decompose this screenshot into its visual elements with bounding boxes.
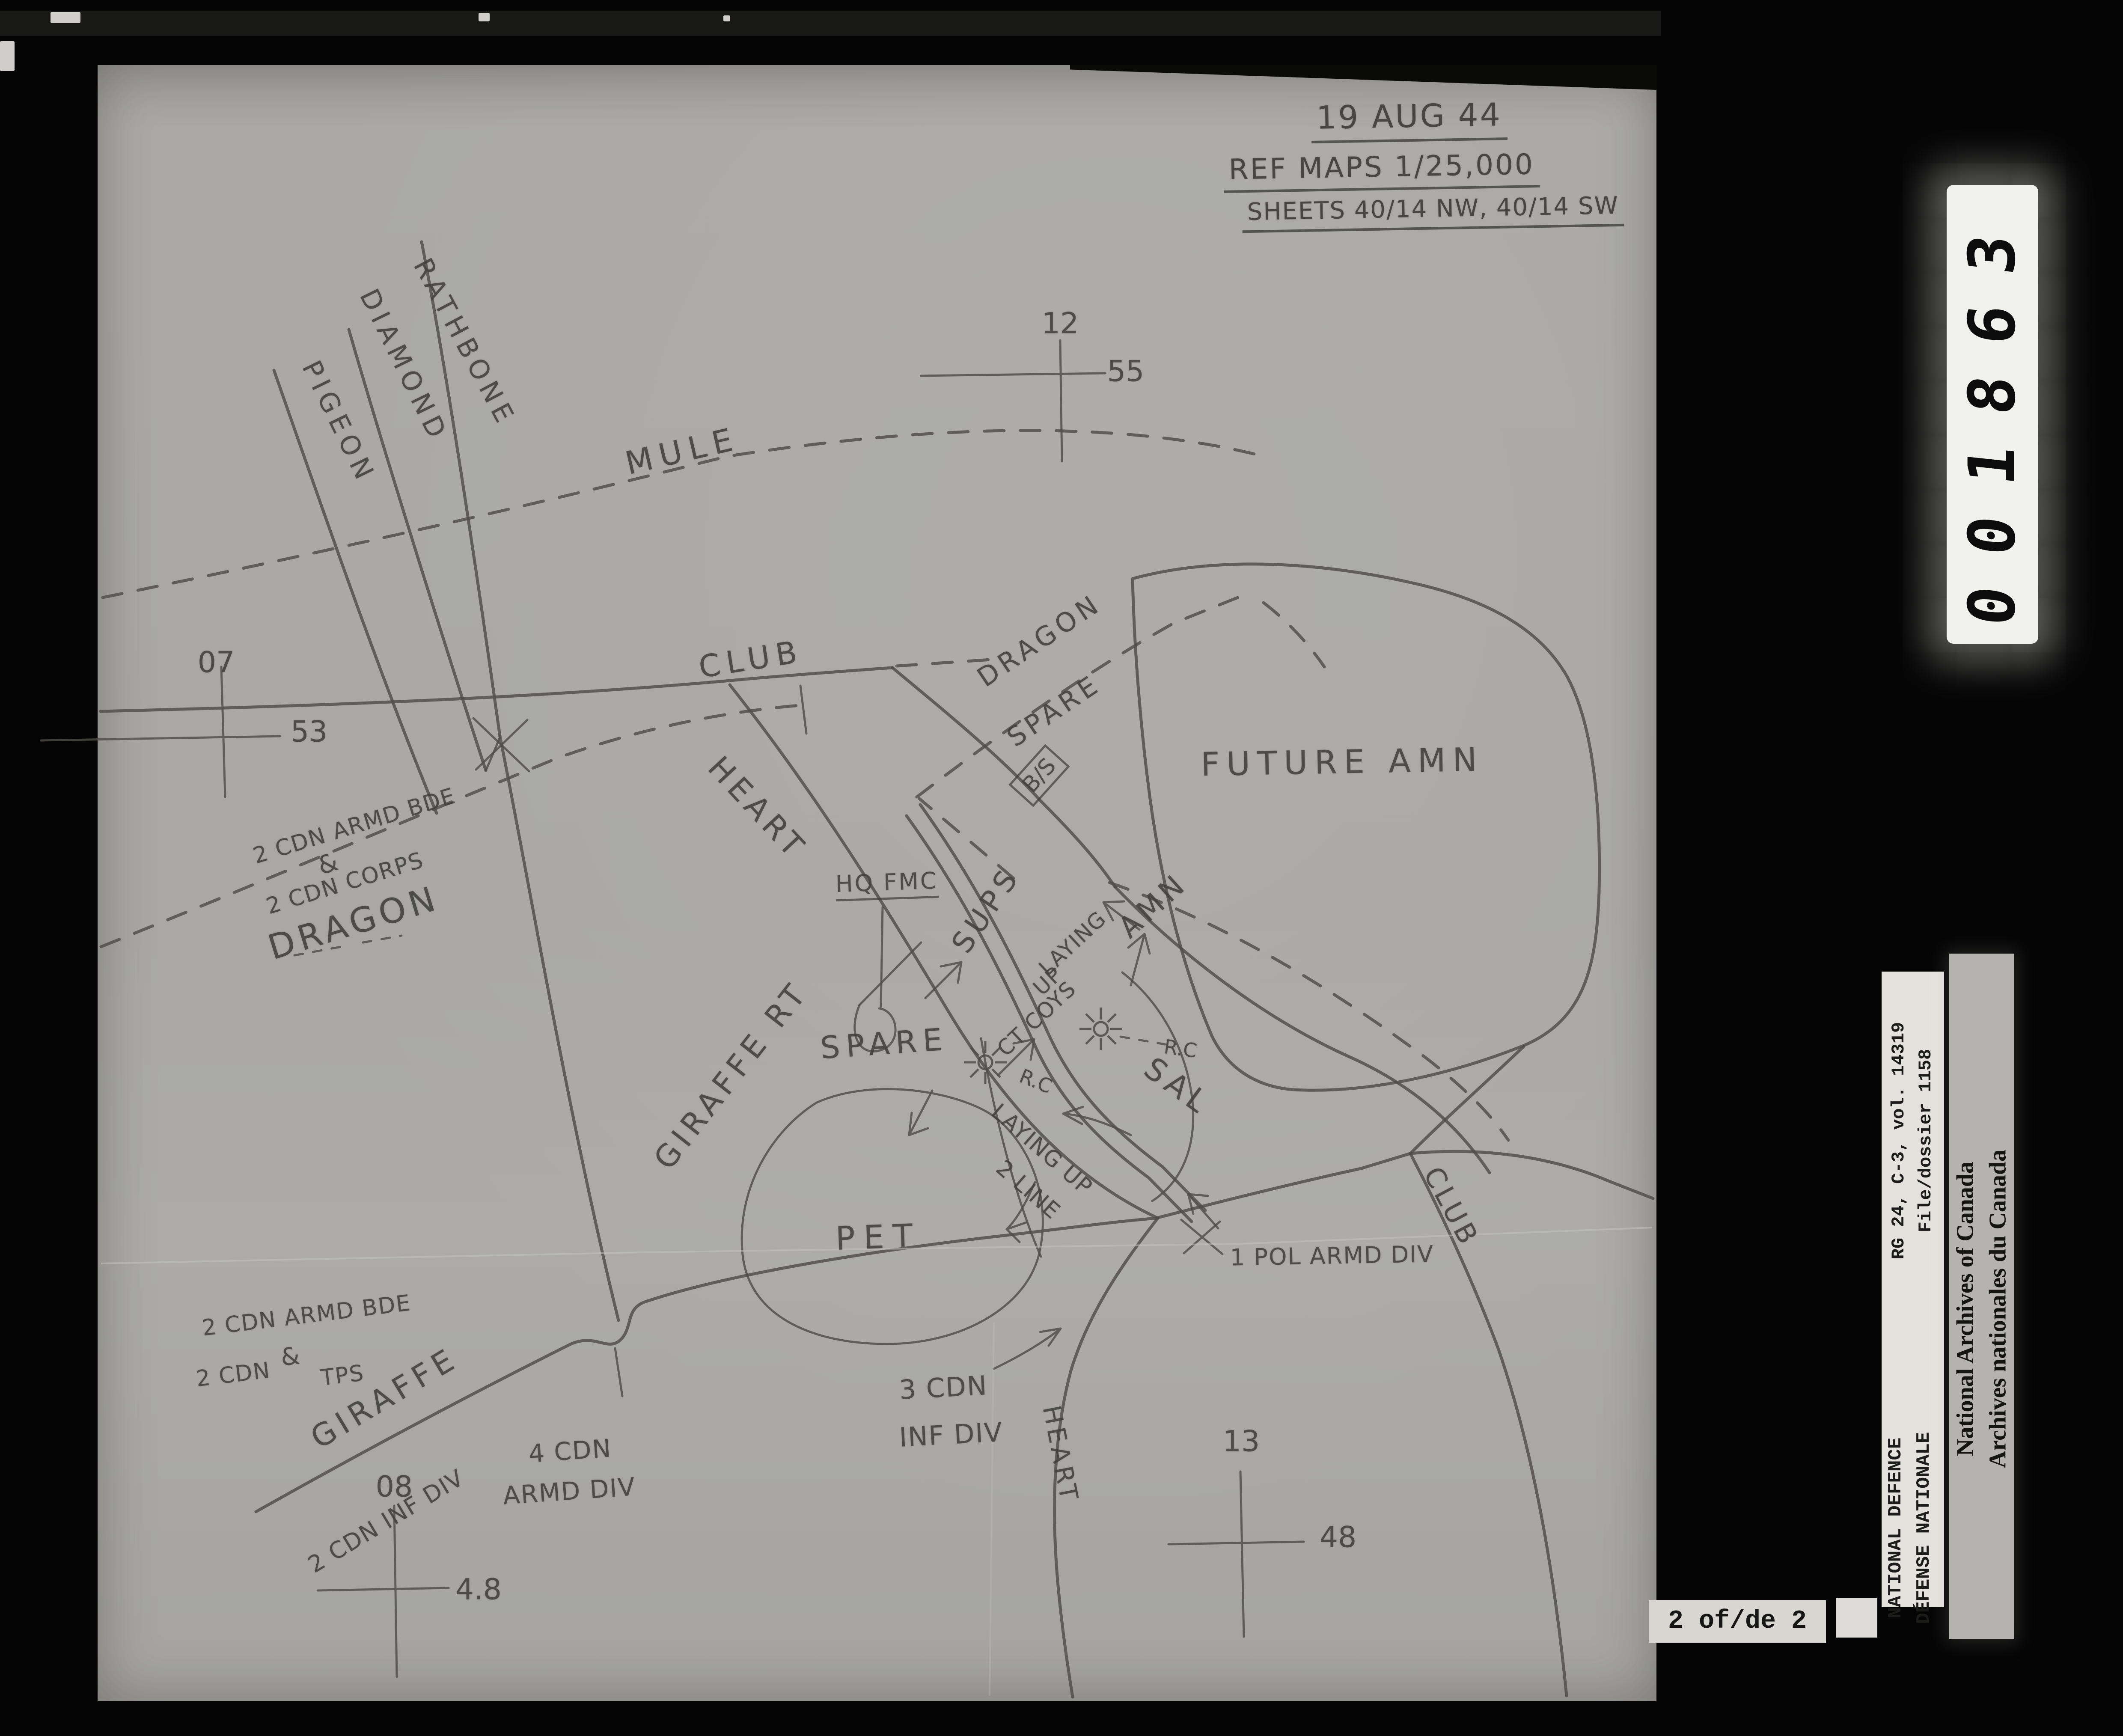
- note-3cdn: 3 CDN: [898, 1370, 988, 1406]
- note-4cdn: 4 CDN: [528, 1433, 613, 1468]
- route-heart-north: HEART: [701, 749, 814, 867]
- grid-easting-13: 13: [1223, 1425, 1260, 1459]
- grid-northing-55: 55: [1107, 355, 1145, 389]
- route-sal: SAL: [1138, 1050, 1219, 1122]
- grid-northing-48-west: 4.8: [455, 1573, 502, 1607]
- map-sheets: SHEETS 40/14 NW, 40/14 SW: [1242, 192, 1624, 233]
- route-bs: B/S: [1008, 744, 1070, 807]
- area-future-amn: FUTURE AMN: [1201, 740, 1484, 784]
- route-giraffe-rt: GIRAFFE RT: [647, 974, 816, 1176]
- map-ref-maps: REF MAPS 1/25,000: [1223, 148, 1540, 193]
- note-1-pol-armd-div: 1 POL ARMD DIV: [1230, 1240, 1434, 1271]
- note-4cdn-armd-div: ARMD DIV: [502, 1472, 637, 1510]
- archive-reference-line2: File/dossier 1158: [1912, 1022, 1939, 1260]
- route-spare-northeast: SPARE: [1001, 668, 1106, 753]
- page-indicator: 2 of/de 2: [1649, 1600, 1826, 1643]
- microfilm-frame-counter: 001863: [1947, 185, 2038, 644]
- route-mule: MULE: [622, 420, 743, 482]
- route-heart-south: HEART: [1037, 1403, 1085, 1506]
- area-pet: PET: [835, 1216, 922, 1257]
- route-sups: SUPS: [945, 861, 1027, 960]
- grid-northing-53: 53: [291, 715, 328, 749]
- map-date: 19 AUG 44: [1311, 96, 1507, 143]
- department-line2: DÉFENSE NATIONALE: [1910, 1432, 1938, 1624]
- grid-northing-48-east: 48: [1320, 1521, 1357, 1555]
- microfilm-frame-number: 001863: [1955, 199, 2030, 629]
- note-2cdn-south: 2 CDN: [195, 1358, 272, 1392]
- grid-easting-07: 07: [198, 646, 235, 680]
- note-rc-south: R.C: [1016, 1064, 1056, 1098]
- note-hq-fmc: HQ FMC: [835, 867, 939, 901]
- archives-canada-block: National Archives of Canada Archives nat…: [1949, 1150, 2014, 1468]
- route-amn: AMN: [1112, 866, 1194, 945]
- boundary-symbol-south: &: [279, 1342, 301, 1372]
- archive-reference-block: RG 24, C-3, vol. 14319 File/dossier 1158: [1885, 1022, 1939, 1260]
- archive-reference-line1: RG 24, C-3, vol. 14319: [1885, 1022, 1912, 1260]
- route-giraffe-south: GIRAFFE: [304, 1340, 464, 1456]
- department-block: NATIONAL DEFENCE DÉFENSE NATIONALE: [1882, 1432, 1938, 1624]
- grid-easting-12: 12: [1042, 307, 1079, 341]
- route-club-southeast: CLUB: [1417, 1162, 1485, 1252]
- archives-line1: National Archives of Canada: [1949, 1150, 1982, 1468]
- route-spare-central: SPARE: [819, 1021, 949, 1066]
- note-2cdn-armd-bde-north: 2 CDN ARMD BDE: [250, 783, 458, 869]
- map-label-layer: 19 AUG 44REF MAPS 1/25,000SHEETS 40/14 N…: [0, 0, 2123, 1736]
- note-3cdn-inf-div: INF DIV: [898, 1416, 1004, 1453]
- route-club-north: CLUB: [696, 633, 805, 685]
- film-label-fragment: [1836, 1598, 1877, 1638]
- archives-line2: Archives nationales du Canada: [1982, 1150, 2014, 1468]
- microfilm-scan: 19 AUG 44REF MAPS 1/25,000SHEETS 40/14 N…: [0, 0, 2123, 1736]
- department-line1: NATIONAL DEFENCE: [1882, 1432, 1910, 1624]
- note-2cdn-armd-bde-south: 2 CDN ARMD BDE: [201, 1290, 413, 1341]
- route-pigeon: PIGEON: [296, 356, 382, 489]
- note-tps-south: TPS: [319, 1360, 366, 1391]
